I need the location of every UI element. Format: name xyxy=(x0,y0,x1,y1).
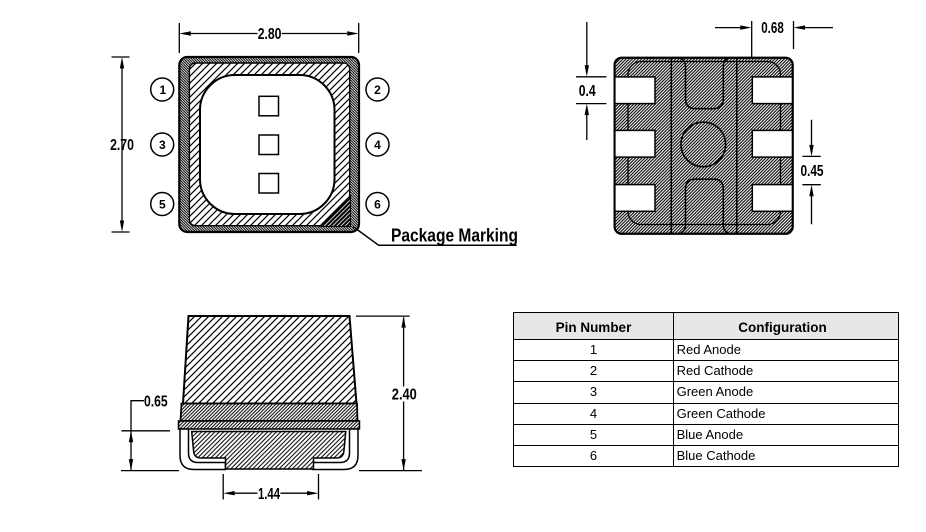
svg-text:4: 4 xyxy=(374,138,381,152)
svg-text:1.44: 1.44 xyxy=(258,486,280,503)
svg-text:2.70: 2.70 xyxy=(110,137,134,154)
svg-text:0.4: 0.4 xyxy=(579,83,596,100)
svg-text:Package Marking: Package Marking xyxy=(391,226,518,246)
svg-text:1: 1 xyxy=(159,83,166,97)
svg-text:0.65: 0.65 xyxy=(144,393,168,410)
svg-text:2.80: 2.80 xyxy=(258,26,282,43)
svg-text:0.45: 0.45 xyxy=(800,163,823,180)
svg-text:3: 3 xyxy=(159,138,166,152)
svg-text:5: 5 xyxy=(159,197,166,211)
svg-text:2: 2 xyxy=(374,83,381,97)
svg-text:6: 6 xyxy=(374,197,381,211)
svg-text:2.40: 2.40 xyxy=(392,387,417,404)
svg-text:0.68: 0.68 xyxy=(761,20,784,37)
